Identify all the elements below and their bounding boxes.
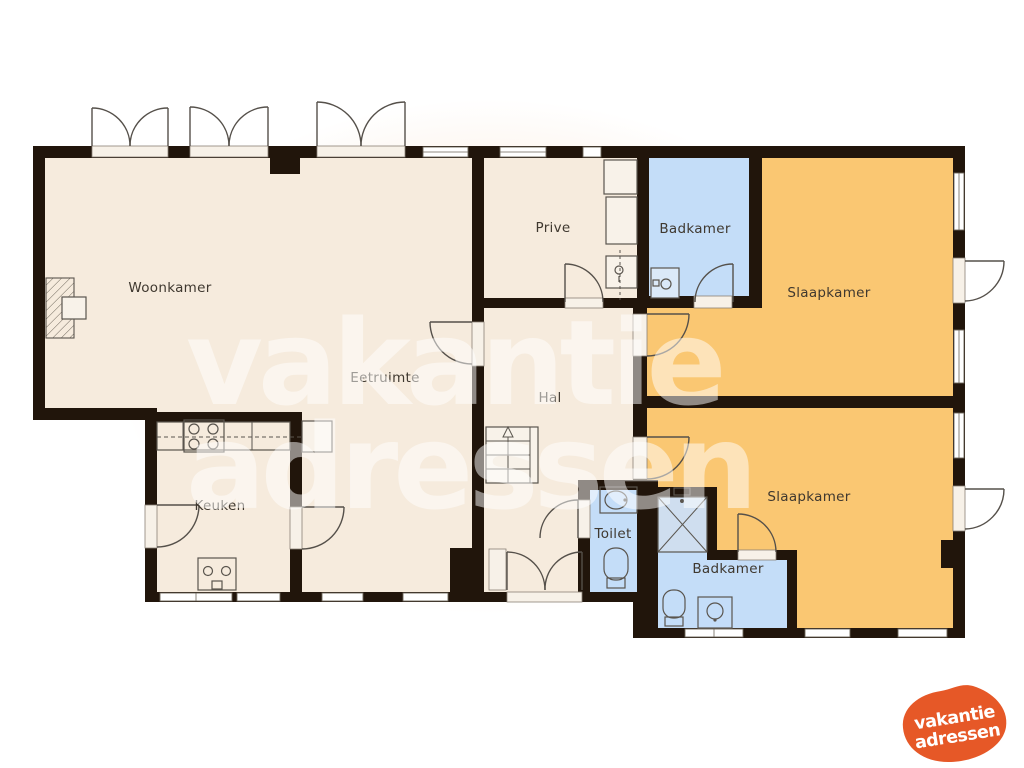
room-label-badkamer-beneden: Badkamer	[692, 561, 764, 577]
room-label-slaapkamer-boven: Slaapkamer	[787, 285, 870, 301]
room-label-keuken: Keuken	[194, 498, 245, 514]
floorplan-page: Woonkamer Eetruimte Prive Badkamer Slaap…	[0, 0, 1024, 768]
floor-plan: Woonkamer Eetruimte Prive Badkamer Slaap…	[0, 0, 1024, 768]
room-label-hal: Hal	[538, 390, 561, 406]
room-label-badkamer-boven: Badkamer	[659, 221, 731, 237]
stairs	[486, 427, 538, 483]
shower-icon	[658, 488, 707, 552]
room-label-prive: Prive	[536, 220, 571, 236]
vakantieadressen-logo: vakantie adressen	[897, 682, 1015, 766]
room-label-woonkamer: Woonkamer	[128, 280, 211, 296]
room-label-toilet: Toilet	[593, 526, 631, 542]
prive-cabinets	[604, 160, 637, 244]
room-label-slaapkamer-beneden: Slaapkamer	[767, 489, 850, 505]
washbasin-top-icon	[651, 268, 679, 298]
room-label-eetruimte: Eetruimte	[350, 370, 419, 386]
